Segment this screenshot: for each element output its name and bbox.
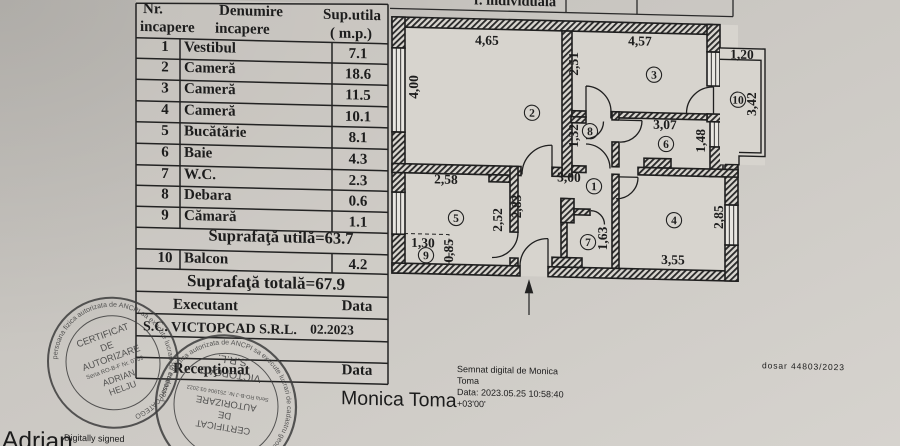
svg-text:Cameră: Cameră [184, 60, 236, 77]
svg-text:7.1: 7.1 [349, 46, 368, 62]
svg-text:2,83: 2,83 [509, 194, 524, 218]
svg-text:6: 6 [663, 139, 669, 151]
svg-text:DE: DE [217, 408, 232, 421]
svg-text:1,20: 1,20 [730, 47, 754, 63]
svg-text:3,42: 3,42 [744, 92, 759, 116]
svg-text:Baie: Baie [184, 145, 213, 162]
svg-text:Denumire: Denumire [219, 3, 283, 21]
svg-text:2,58: 2,58 [434, 171, 458, 187]
svg-text:10.1: 10.1 [345, 109, 371, 126]
svg-text:6: 6 [161, 144, 169, 160]
svg-text:4: 4 [161, 102, 169, 118]
svg-text:Bucătărie: Bucătărie [184, 123, 247, 141]
svg-text:incapere: incapere [140, 19, 195, 36]
svg-text:3,00: 3,00 [557, 169, 581, 185]
svg-text:Nr.: Nr. [143, 1, 163, 17]
svg-text:5: 5 [453, 213, 459, 225]
svg-text:7: 7 [161, 166, 169, 182]
svg-text:0.6: 0.6 [349, 193, 368, 209]
svg-text:2,85: 2,85 [711, 205, 726, 229]
svg-text:Debara: Debara [184, 187, 232, 204]
svg-text:Vestibul: Vestibul [184, 39, 236, 56]
svg-text:W.C.: W.C. [184, 166, 216, 183]
svg-text:3,55: 3,55 [661, 252, 685, 268]
svg-text:Cămară: Cămară [184, 208, 237, 225]
svg-text:Data: Data [342, 362, 373, 379]
svg-text:10: 10 [732, 95, 744, 107]
svg-text:Suprafaţă totală=67.9: Suprafaţă totală=67.9 [187, 271, 345, 294]
svg-text:Data: Data [342, 298, 373, 315]
svg-text:4,00: 4,00 [406, 75, 421, 99]
svg-text:Adrian: Adrian [2, 427, 73, 446]
svg-text:Monica Toma: Monica Toma [341, 387, 457, 412]
svg-text:incapere: incapere [215, 21, 270, 38]
svg-text:8: 8 [587, 126, 593, 138]
svg-text:2.3: 2.3 [349, 173, 368, 189]
svg-text:Toma: Toma [457, 375, 479, 386]
svg-text:3: 3 [161, 80, 168, 96]
svg-text:+03'00': +03'00' [457, 398, 486, 409]
svg-text:Digitally signed: Digitally signed [64, 433, 125, 444]
svg-text:9: 9 [161, 207, 168, 223]
svg-text:Sup.utila: Sup.utila [323, 7, 381, 24]
svg-text:8.1: 8.1 [349, 130, 368, 146]
svg-text:Cameră: Cameră [184, 102, 236, 119]
svg-text:dosar 44803/2023: dosar 44803/2023 [762, 360, 845, 372]
svg-text:5: 5 [161, 123, 168, 139]
svg-text:4,57: 4,57 [628, 33, 652, 49]
svg-text:2,52: 2,52 [490, 208, 505, 232]
svg-text:7: 7 [585, 237, 591, 249]
svg-text:4.3: 4.3 [349, 151, 368, 167]
svg-text:11.5: 11.5 [345, 87, 370, 104]
svg-text:10: 10 [158, 250, 173, 266]
svg-text:8: 8 [161, 186, 168, 202]
svg-text:1,48: 1,48 [693, 129, 708, 153]
svg-text:Executant: Executant [173, 297, 238, 315]
svg-text:Balcon: Balcon [184, 250, 229, 267]
svg-text:Cameră: Cameră [184, 81, 236, 98]
svg-text:9: 9 [423, 250, 429, 262]
svg-text:1,32: 1,32 [566, 124, 581, 148]
svg-text:2,51: 2,51 [566, 52, 581, 76]
svg-text:1,63: 1,63 [595, 226, 610, 250]
svg-text:3: 3 [651, 70, 657, 82]
svg-text:18.6: 18.6 [345, 66, 372, 83]
svg-text:( m.p.): ( m.p.) [330, 25, 372, 42]
svg-text:1: 1 [591, 181, 597, 193]
svg-text:1: 1 [161, 39, 168, 55]
svg-text:4: 4 [671, 215, 677, 227]
svg-text:Suprafaţă utilă=63.7: Suprafaţă utilă=63.7 [208, 226, 353, 248]
svg-text:2: 2 [529, 108, 535, 120]
svg-text:02.2023: 02.2023 [310, 321, 354, 337]
svg-text:2: 2 [161, 59, 168, 75]
svg-text:0,85: 0,85 [441, 239, 456, 263]
svg-text:3,07: 3,07 [653, 117, 677, 133]
svg-text:4,65: 4,65 [475, 32, 499, 48]
svg-text:4.2: 4.2 [349, 257, 368, 273]
